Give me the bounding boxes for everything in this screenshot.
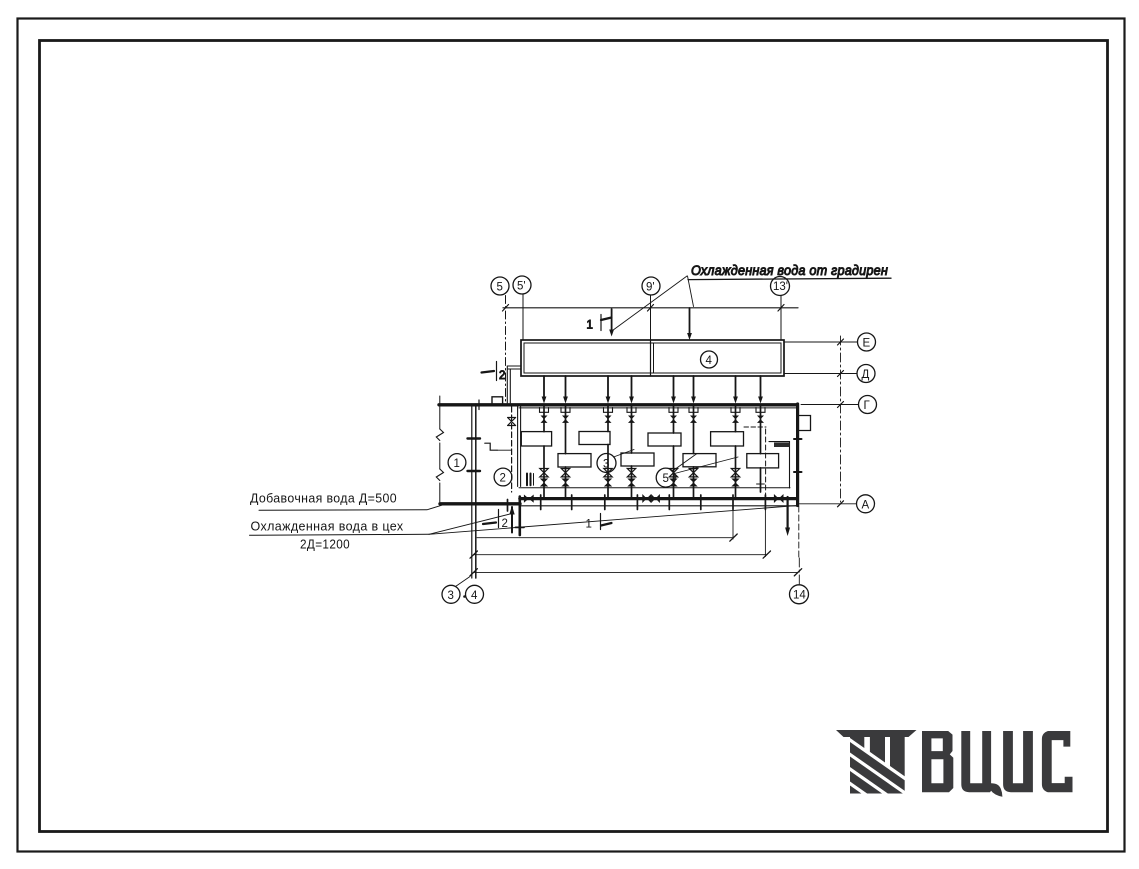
svg-text:3: 3 <box>603 459 609 471</box>
svg-text:2Д=1200: 2Д=1200 <box>300 537 350 552</box>
svg-text:2: 2 <box>502 518 508 530</box>
svg-text:2: 2 <box>500 473 506 485</box>
svg-text:1: 1 <box>454 458 460 470</box>
svg-text:Охлажденная вода в цех: Охлажденная вода в цех <box>251 519 404 534</box>
svg-text:9': 9' <box>646 282 655 294</box>
svg-text:1: 1 <box>587 320 593 332</box>
svg-text:4: 4 <box>471 590 478 602</box>
svg-text:4: 4 <box>706 355 713 367</box>
svg-text:5': 5' <box>517 281 526 293</box>
svg-text:Е: Е <box>863 338 871 350</box>
svg-text:Охлажденная вода от градирен: Охлажденная вода от градирен <box>691 262 888 278</box>
svg-text:5: 5 <box>663 473 669 485</box>
svg-text:Добавочная вода Д=500: Добавочная вода Д=500 <box>250 491 397 506</box>
svg-text:Д: Д <box>862 369 870 381</box>
svg-text:Г: Г <box>864 400 871 412</box>
svg-text:5: 5 <box>497 282 503 294</box>
svg-text:3: 3 <box>448 590 454 602</box>
svg-text:1: 1 <box>586 519 592 531</box>
svg-text:2: 2 <box>499 370 505 382</box>
svg-text:13': 13' <box>773 281 788 293</box>
svg-text:А: А <box>862 499 870 511</box>
svg-text:14: 14 <box>793 589 806 601</box>
